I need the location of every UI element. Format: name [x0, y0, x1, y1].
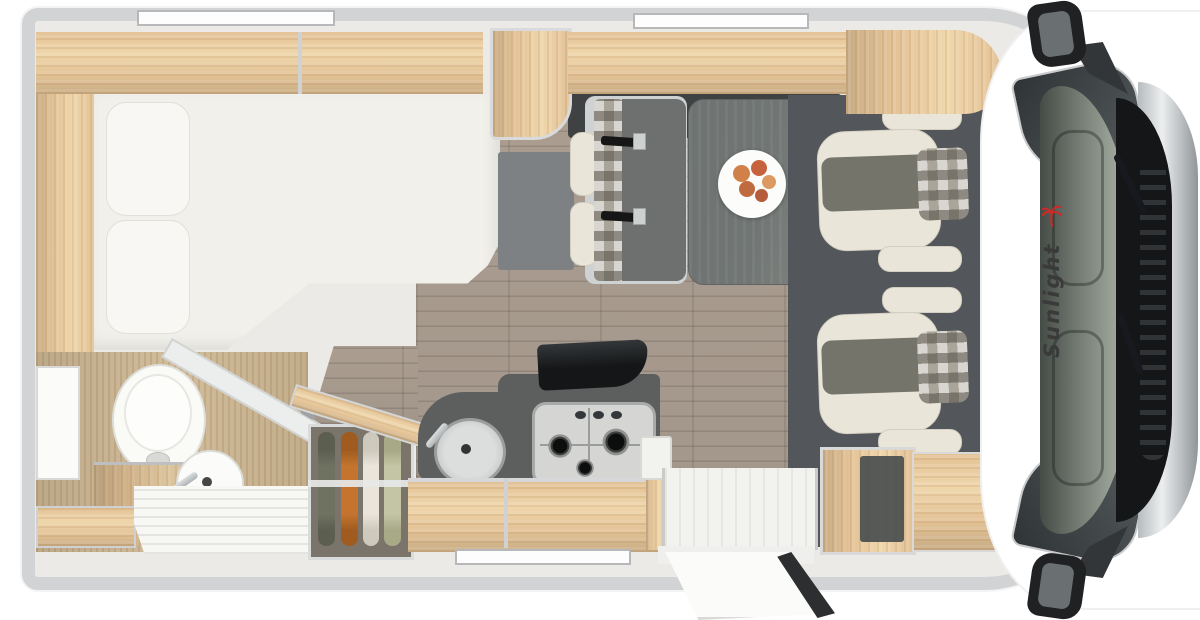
hanging-garment	[363, 432, 379, 546]
cab-overhead-corner	[846, 30, 1002, 114]
bathroom-mirror	[36, 366, 80, 480]
window	[455, 549, 631, 565]
seat-belt-buckle	[633, 133, 646, 150]
cab-seat-armrest	[878, 246, 962, 272]
side-mirror-glass	[1037, 10, 1075, 58]
hob-burner	[574, 458, 596, 478]
cab-seat-headrest	[917, 147, 969, 221]
tv-partition-column	[490, 28, 572, 140]
cab-seat-armrest	[882, 287, 962, 313]
hob-burner	[600, 426, 632, 458]
kitchen-drawer-front	[408, 478, 660, 552]
fruit	[751, 160, 767, 176]
sink-drain	[461, 444, 471, 454]
hanging-garment	[341, 432, 358, 546]
pillow	[106, 220, 190, 334]
washbasin-drain	[202, 477, 212, 487]
bed-head-cabinet	[36, 94, 94, 352]
hanging-garment	[384, 432, 401, 546]
side-mirror-glass	[1037, 562, 1075, 610]
cabinet-glass-panel	[860, 456, 904, 542]
seat-belt-buckle	[633, 208, 646, 225]
entry-step	[662, 468, 818, 550]
hob-burner	[546, 432, 574, 460]
hanging-garment	[318, 432, 335, 546]
bench-backrest-checkered	[594, 99, 624, 281]
hob-knob	[611, 411, 622, 419]
fruit	[739, 181, 755, 197]
brand-logo: Sunlight	[1036, 204, 1068, 376]
overhead-lockers-left	[36, 32, 483, 94]
wardrobe-rail	[308, 480, 408, 487]
hob-knob	[575, 411, 586, 419]
cab-seat-headrest	[917, 330, 969, 404]
bench-seat	[622, 99, 686, 281]
palm-sun-icon	[1041, 204, 1063, 228]
toilet-lid	[124, 374, 192, 452]
locker-divider	[298, 32, 302, 94]
motorhome-floor-plan: Sunlight	[0, 0, 1200, 620]
cab-seat-stripe	[821, 337, 929, 395]
window	[137, 10, 335, 26]
brand-logo-text: Sunlight	[1040, 230, 1064, 370]
window	[633, 13, 809, 29]
pillow	[106, 102, 190, 216]
bedside-mat	[498, 152, 574, 270]
fruit	[733, 165, 750, 182]
fruit	[762, 175, 776, 189]
overhead-lockers-right	[568, 32, 846, 94]
kitchen-front-divider	[504, 478, 508, 548]
bathroom-shelf	[36, 506, 136, 548]
cab-seat-stripe	[821, 154, 929, 212]
shower-tray	[134, 486, 308, 554]
fruit	[755, 189, 768, 202]
hob-knob	[593, 411, 604, 419]
